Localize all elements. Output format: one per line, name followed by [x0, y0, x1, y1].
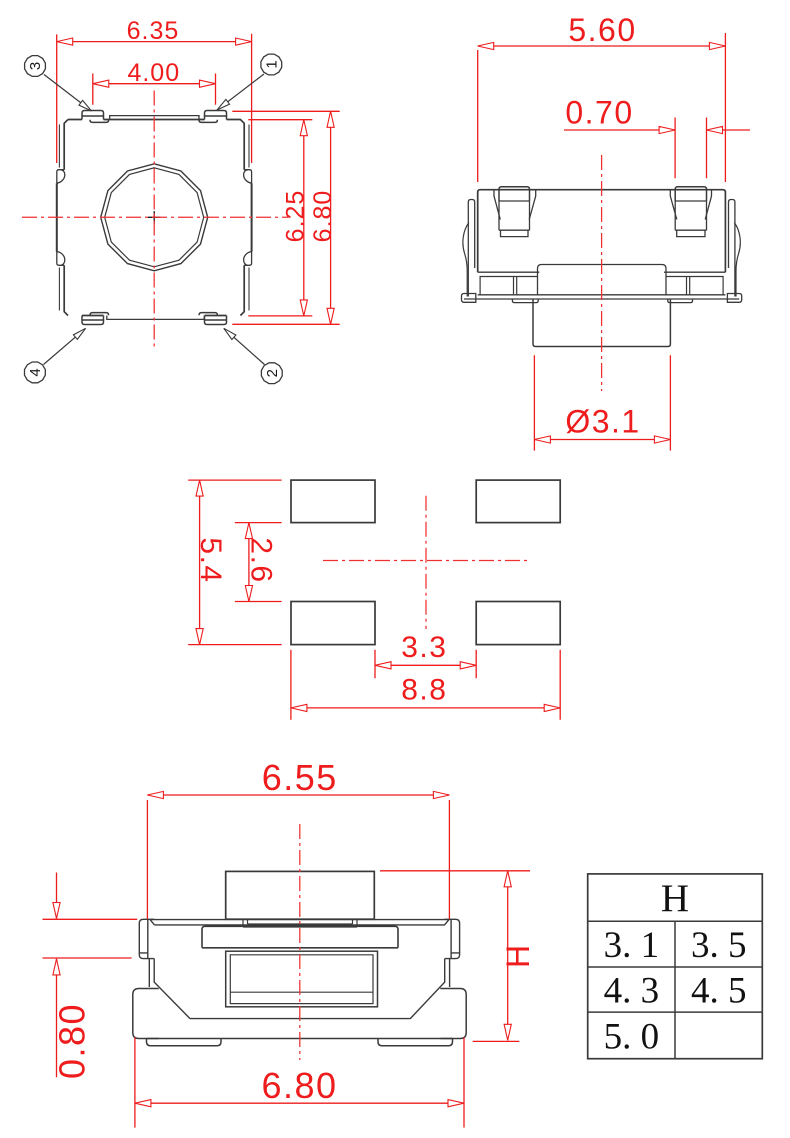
svg-text:8.8: 8.8 — [401, 674, 447, 707]
svg-text:Ø3.1: Ø3.1 — [565, 404, 640, 440]
svg-text:4.00: 4.00 — [127, 59, 180, 87]
svg-text:6.80: 6.80 — [261, 1065, 337, 1106]
svg-text:3. 5: 3. 5 — [691, 925, 747, 966]
svg-text:3: 3 — [27, 62, 44, 70]
svg-text:5. 0: 5. 0 — [604, 1017, 660, 1058]
svg-text:1: 1 — [264, 60, 281, 68]
svg-text:4. 3: 4. 3 — [604, 971, 660, 1012]
svg-text:2.6: 2.6 — [245, 537, 278, 583]
svg-text:6.80: 6.80 — [309, 190, 337, 243]
svg-text:5.60: 5.60 — [568, 12, 636, 48]
svg-text:0.70: 0.70 — [565, 95, 633, 131]
svg-text:3.3: 3.3 — [401, 631, 447, 664]
svg-text:H: H — [500, 945, 536, 968]
svg-text:4: 4 — [27, 368, 44, 376]
svg-text:6.25: 6.25 — [281, 190, 309, 243]
svg-text:4. 5: 4. 5 — [691, 971, 747, 1012]
svg-text:6.55: 6.55 — [262, 757, 338, 798]
svg-text:5.4: 5.4 — [194, 537, 227, 583]
svg-text:6.35: 6.35 — [127, 17, 180, 45]
svg-text:0.80: 0.80 — [51, 1003, 92, 1079]
svg-text:2: 2 — [264, 369, 281, 377]
svg-text:3. 1: 3. 1 — [604, 925, 660, 966]
svg-text:H: H — [661, 877, 689, 920]
